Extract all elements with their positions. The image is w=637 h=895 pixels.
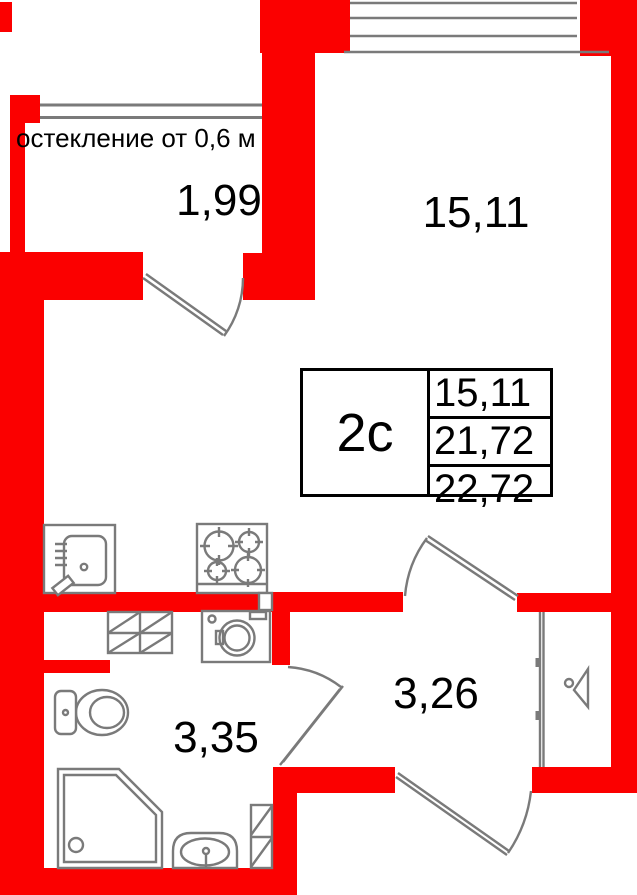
living-area-label: 15,11 [423, 188, 530, 238]
window-glazing-balcony [40, 105, 262, 118]
washing-machine-icon [202, 611, 270, 662]
duct-box [259, 593, 272, 610]
living-room-door-swing [405, 536, 518, 600]
hanger-icon [565, 669, 588, 707]
balcony-area-label: 1,99 [176, 176, 262, 226]
bathroom-area-label: 3,35 [173, 713, 259, 763]
unit-type-cell: 2с [303, 371, 430, 494]
stove-icon [197, 524, 267, 593]
window-glazing-top [344, 3, 609, 52]
wardrobe-line [536, 612, 544, 767]
balcony-door-swing [143, 274, 243, 336]
vent-shaft-icon-top [108, 612, 172, 653]
bathroom-door-swing [280, 667, 343, 765]
floor-plan: остекление от 0,6 м 1,99 15,11 3,35 3,26… [0, 0, 637, 895]
unit-info-table: 2с 15,11 21,72 22,72 [300, 368, 553, 497]
vent-shaft-icon-bottom [251, 805, 272, 868]
area-value-row: 22,72 [430, 464, 550, 512]
area-value-row: 21,72 [430, 416, 550, 464]
shower-tray-icon [58, 769, 162, 868]
kitchen-sink-icon [44, 525, 115, 595]
hallway-area-label: 3,26 [393, 669, 479, 719]
area-value-row: 15,11 [430, 371, 550, 416]
toilet-icon [55, 690, 128, 735]
unit-area-values: 15,11 21,72 22,72 [430, 371, 550, 494]
entrance-door-swing [396, 773, 531, 855]
glazing-note: остекление от 0,6 м [16, 123, 256, 154]
washbasin-icon [173, 833, 237, 868]
